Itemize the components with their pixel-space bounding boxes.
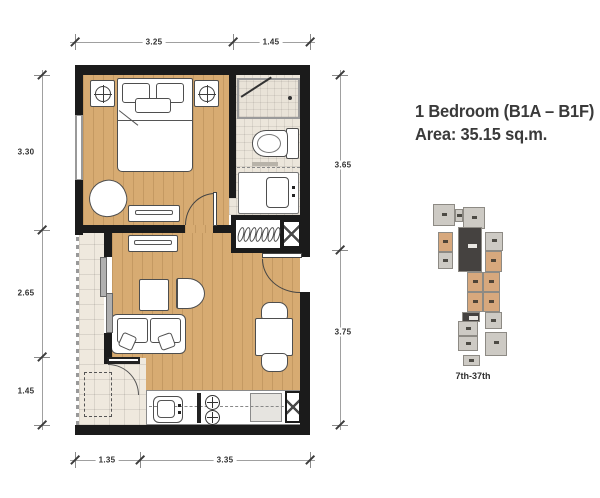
keyplan-core [458,227,482,272]
bathroom-bulkhead-line [237,167,300,168]
floor-plan-page: 3.25 1.45 1.35 3.35 3.30 2.65 1.45 3.65 … [0,0,600,498]
dim-label: 1.45 [15,387,38,396]
keyplan-unit [458,336,478,351]
dresser-detail [135,210,173,215]
dim-label: 1.35 [96,456,119,465]
dim-label: 3.65 [332,161,355,170]
keyplan-unit [463,355,480,366]
burner-icon [205,410,220,425]
keyplan: 7th-37th [428,192,518,382]
keyplan-unit [485,232,503,251]
dim-label: 2.65 [15,289,38,298]
dim-label: 3.75 [332,328,355,337]
kitchen-cabinet [250,393,282,422]
unit-type-title: 1 Bedroom (B1A – B1F) [415,100,594,123]
keyplan-unit [485,332,507,356]
bed-pillow-center [135,98,171,113]
unit-title-block: 1 Bedroom (B1A – B1F) Area: 35.15 sq.m. [415,100,600,146]
sink-faucet-icon [178,404,181,407]
keyplan-unit-highlighted [438,232,453,252]
entrance-door-leaf [262,253,302,258]
dim-label: 1.45 [260,38,283,47]
sliding-door-panel [100,257,107,297]
sliding-door-panel [106,293,113,333]
keyplan-unit [433,204,455,226]
bedroom-door-leaf [213,192,217,226]
bedroom-window [75,115,83,180]
wardrobe-hangers [236,220,280,248]
sink-faucet-icon [178,411,181,414]
keyplan-unit-highlighted [485,251,502,272]
coffee-table [139,279,169,311]
dining-chair-bottom [261,353,288,372]
bath-step [252,162,278,166]
kitchen-sink-basin [157,400,175,418]
wall-bathroom [229,75,236,198]
keyplan-unit-highlighted [467,292,483,312]
dim-label: 3.30 [15,148,38,157]
keyplan-unit-highlighted [483,272,500,292]
dim-label: 3.35 [214,456,237,465]
faucet-icon [292,186,295,189]
shaft-x-icon [282,220,301,248]
wall-top [75,65,310,75]
lamp-icon [199,86,215,102]
blanket-edge [118,120,192,121]
shower-head-icon [288,96,292,100]
shaft-x-icon [285,391,301,423]
dim-line-left [42,70,43,430]
keyplan-unit-highlighted [467,272,483,292]
keyplan-unit [455,209,463,222]
keyplan-unit [438,252,453,269]
keyplan-unit [463,207,485,229]
balcony-door-panel-core [109,359,138,361]
keyplan-unit-highlighted [483,292,500,312]
vanity-sink [266,177,289,208]
bedroom-door-threshold [185,225,213,233]
balcony-railing [76,233,79,425]
keyplan-unit [458,321,478,336]
wall-balcony-upper [104,233,112,257]
stove-frame [197,393,201,423]
wall-bottom [75,425,310,435]
keyplan-floors-label: 7th-37th [455,371,490,381]
bathroom-entry-floor [229,198,236,215]
faucet-icon [292,194,295,197]
dim-label: 3.25 [143,38,166,47]
toilet-seat [257,134,281,153]
lamp-icon [95,86,111,102]
burner-icon [205,395,220,410]
wall-right-lower [300,292,310,425]
dining-table [255,318,293,356]
keyplan-unit [485,312,502,329]
keyplan-blocks [428,192,518,370]
unit-area-title: Area: 35.15 sq.m. [415,123,594,146]
tv-console-detail [134,240,172,245]
wall-bedroom-divider [83,225,185,233]
